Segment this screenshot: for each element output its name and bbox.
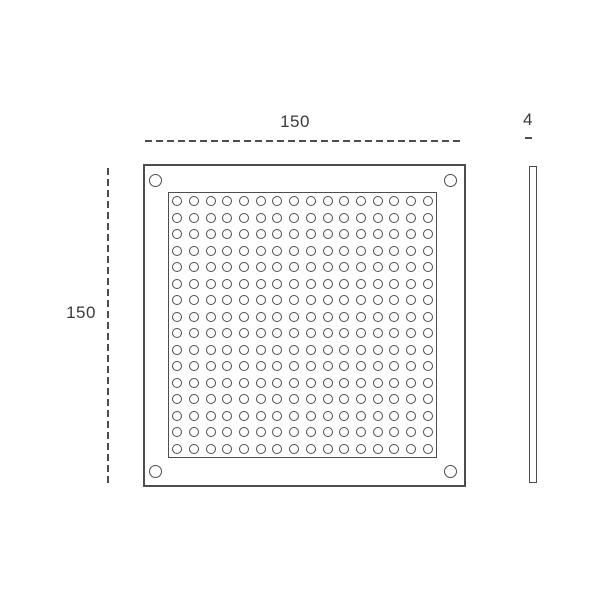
perforation-hole <box>272 328 282 338</box>
perforation-hole <box>256 361 266 371</box>
perforation-hole <box>222 246 232 256</box>
perforation-hole <box>256 378 266 388</box>
perforation-hole <box>189 213 199 223</box>
perforation-hole <box>406 279 416 289</box>
perforation-hole <box>289 394 299 404</box>
perforation-hole <box>289 213 299 223</box>
perforation-hole <box>373 427 383 437</box>
perforation-hole <box>356 394 366 404</box>
perforation-hole <box>239 361 249 371</box>
plate-side-view <box>529 166 537 483</box>
perforation-hole <box>423 213 433 223</box>
perforation-hole <box>256 394 266 404</box>
perforation-hole <box>373 312 383 322</box>
perforation-hole <box>206 312 216 322</box>
perforation-hole <box>339 361 349 371</box>
perforation-hole <box>206 427 216 437</box>
perforation-hole <box>389 229 399 239</box>
perforation-hole <box>239 246 249 256</box>
perforation-hole <box>323 378 333 388</box>
perforation-hole <box>189 262 199 272</box>
perforation-hole <box>389 328 399 338</box>
perforation-hole <box>339 262 349 272</box>
perforation-hole <box>239 427 249 437</box>
perforation-hole <box>289 262 299 272</box>
perforation-hole <box>423 394 433 404</box>
perforation-hole <box>306 213 316 223</box>
perforation-hole <box>172 427 182 437</box>
perforation-hole <box>239 279 249 289</box>
perforation-hole <box>206 361 216 371</box>
perforation-hole <box>172 394 182 404</box>
perforation-hole <box>323 361 333 371</box>
perforation-hole <box>239 312 249 322</box>
perforation-hole <box>406 262 416 272</box>
perforation-hole <box>373 213 383 223</box>
perforation-hole <box>272 312 282 322</box>
perforation-hole <box>206 411 216 421</box>
perforation-hole <box>389 295 399 305</box>
perforation-hole <box>306 444 316 454</box>
perforation-hole <box>356 411 366 421</box>
perforation-hole <box>272 229 282 239</box>
perforation-hole <box>272 279 282 289</box>
perforation-hole <box>373 378 383 388</box>
perforation-hole <box>289 378 299 388</box>
perforation-hole <box>356 279 366 289</box>
perforation-hole <box>289 411 299 421</box>
perforation-hole <box>389 213 399 223</box>
width-dimension-label: 150 <box>263 112 327 132</box>
perforation-hole <box>172 262 182 272</box>
perforation-hole <box>406 213 416 223</box>
perforation-hole <box>306 394 316 404</box>
perforation-hole <box>306 295 316 305</box>
perforation-hole <box>339 411 349 421</box>
perforation-hole <box>373 444 383 454</box>
perforation-hole <box>323 213 333 223</box>
perforation-hole <box>339 213 349 223</box>
perforation-hole <box>206 394 216 404</box>
perforation-hole <box>189 394 199 404</box>
perforation-hole <box>323 427 333 437</box>
perforation-hole <box>423 361 433 371</box>
perforation-hole <box>389 411 399 421</box>
height-dimension-label: 150 <box>59 303 103 323</box>
perforation-hole <box>289 444 299 454</box>
perforation-hole <box>306 361 316 371</box>
corner-hole-top-left <box>149 174 162 187</box>
perforation-hole <box>373 279 383 289</box>
perforation-hole <box>406 427 416 437</box>
perforation-hole <box>172 378 182 388</box>
perforation-hole <box>323 246 333 256</box>
perforation-hole <box>306 262 316 272</box>
perforation-hole <box>206 378 216 388</box>
perforation-hole <box>406 411 416 421</box>
perforation-hole <box>206 246 216 256</box>
perforation-hole <box>356 213 366 223</box>
perforation-hole <box>239 444 249 454</box>
perforation-hole <box>272 411 282 421</box>
perforation-hole <box>423 246 433 256</box>
perforation-hole <box>356 427 366 437</box>
perforation-hole <box>373 229 383 239</box>
perforation-hole <box>222 312 232 322</box>
perforation-hole <box>339 295 349 305</box>
perforation-hole <box>289 196 299 206</box>
perforation-hole <box>423 378 433 388</box>
perforation-hole <box>239 295 249 305</box>
perforation-hole <box>206 213 216 223</box>
perforation-hole <box>373 345 383 355</box>
perforation-hole <box>289 295 299 305</box>
perforation-hole <box>172 345 182 355</box>
perforation-hole <box>406 295 416 305</box>
perforation-hole <box>423 262 433 272</box>
perforation-hole <box>289 246 299 256</box>
perforation-hole <box>206 295 216 305</box>
perforation-hole <box>222 229 232 239</box>
perforation-hole <box>323 328 333 338</box>
perforation-hole <box>222 196 232 206</box>
perforation-hole <box>389 246 399 256</box>
perforation-hole <box>239 328 249 338</box>
perforation-hole <box>356 196 366 206</box>
perforation-hole <box>172 361 182 371</box>
perforation-hole <box>172 295 182 305</box>
perforation-hole <box>222 328 232 338</box>
perforation-hole <box>323 295 333 305</box>
perforation-hole <box>289 279 299 289</box>
perforation-hole <box>389 361 399 371</box>
perforation-hole <box>389 262 399 272</box>
perforation-hole <box>172 246 182 256</box>
perforation-hole <box>272 444 282 454</box>
perforation-grid <box>168 192 437 458</box>
perforation-hole <box>306 229 316 239</box>
perforation-hole <box>222 361 232 371</box>
perforation-hole <box>323 394 333 404</box>
perforation-hole <box>423 279 433 289</box>
perforation-hole <box>339 246 349 256</box>
technical-drawing: 150 150 4 <box>0 0 600 600</box>
perforation-hole <box>406 229 416 239</box>
perforation-hole <box>256 328 266 338</box>
perforation-hole <box>222 378 232 388</box>
perforation-hole <box>222 345 232 355</box>
perforation-hole <box>189 196 199 206</box>
perforation-hole <box>323 345 333 355</box>
perforation-hole <box>272 295 282 305</box>
perforation-hole <box>239 196 249 206</box>
perforation-hole <box>389 196 399 206</box>
perforation-hole <box>406 246 416 256</box>
perforation-hole <box>306 196 316 206</box>
perforation-hole <box>239 262 249 272</box>
perforation-hole <box>256 312 266 322</box>
perforation-hole <box>206 279 216 289</box>
perforation-hole <box>339 279 349 289</box>
perforation-hole <box>189 229 199 239</box>
perforation-hole <box>172 312 182 322</box>
perforation-hole <box>356 345 366 355</box>
thickness-dimension-line <box>525 137 532 139</box>
perforation-hole <box>306 411 316 421</box>
perforation-hole <box>239 213 249 223</box>
corner-hole-top-right <box>444 174 457 187</box>
perforation-hole <box>423 427 433 437</box>
perforation-hole <box>389 378 399 388</box>
perforation-hole <box>222 279 232 289</box>
perforation-hole <box>406 378 416 388</box>
perforation-hole <box>206 328 216 338</box>
perforation-hole <box>423 196 433 206</box>
perforation-hole <box>289 361 299 371</box>
perforation-hole <box>272 427 282 437</box>
perforation-hole <box>406 394 416 404</box>
perforation-hole <box>373 196 383 206</box>
perforation-hole <box>423 229 433 239</box>
perforation-hole <box>272 246 282 256</box>
perforation-hole <box>172 444 182 454</box>
perforation-hole <box>373 328 383 338</box>
perforation-hole <box>356 444 366 454</box>
perforation-hole <box>373 411 383 421</box>
perforation-hole <box>256 295 266 305</box>
perforation-hole <box>189 246 199 256</box>
perforation-hole <box>256 411 266 421</box>
perforation-hole <box>256 279 266 289</box>
perforation-hole <box>256 246 266 256</box>
perforation-hole <box>406 361 416 371</box>
perforation-hole <box>323 229 333 239</box>
perforation-hole <box>172 411 182 421</box>
perforation-hole <box>239 229 249 239</box>
perforation-hole <box>306 427 316 437</box>
perforation-hole <box>256 345 266 355</box>
perforation-hole <box>172 279 182 289</box>
perforation-hole <box>389 345 399 355</box>
perforation-hole <box>356 295 366 305</box>
perforation-hole <box>339 345 349 355</box>
perforation-hole <box>356 246 366 256</box>
perforation-hole <box>339 312 349 322</box>
perforation-hole <box>189 312 199 322</box>
perforation-hole <box>289 229 299 239</box>
perforation-hole <box>189 411 199 421</box>
perforation-hole <box>289 312 299 322</box>
perforation-hole <box>323 411 333 421</box>
perforation-hole <box>256 444 266 454</box>
perforation-hole <box>256 213 266 223</box>
height-dimension-line <box>107 168 109 483</box>
perforation-hole <box>423 312 433 322</box>
perforation-hole <box>206 229 216 239</box>
perforation-hole <box>272 378 282 388</box>
plate-front-view <box>143 164 466 487</box>
perforation-hole <box>256 262 266 272</box>
perforation-hole <box>389 312 399 322</box>
perforation-hole <box>172 229 182 239</box>
perforation-hole <box>306 328 316 338</box>
perforation-hole <box>389 427 399 437</box>
perforation-hole <box>406 312 416 322</box>
perforation-hole <box>339 394 349 404</box>
perforation-hole <box>423 345 433 355</box>
perforation-hole <box>239 394 249 404</box>
perforation-hole <box>339 328 349 338</box>
perforation-hole <box>389 444 399 454</box>
perforation-hole <box>189 295 199 305</box>
perforation-hole <box>373 394 383 404</box>
perforation-hole <box>339 378 349 388</box>
perforation-hole <box>373 262 383 272</box>
perforation-hole <box>189 444 199 454</box>
perforation-hole <box>423 328 433 338</box>
perforation-hole <box>256 229 266 239</box>
perforation-hole <box>356 229 366 239</box>
perforation-hole <box>189 328 199 338</box>
perforation-hole <box>306 378 316 388</box>
perforation-hole <box>389 394 399 404</box>
perforation-hole <box>423 444 433 454</box>
perforation-hole <box>339 229 349 239</box>
perforation-hole <box>222 411 232 421</box>
perforation-hole <box>306 312 316 322</box>
perforation-hole <box>272 262 282 272</box>
perforation-hole <box>189 279 199 289</box>
perforation-hole <box>323 262 333 272</box>
perforation-hole <box>306 246 316 256</box>
perforation-hole <box>389 279 399 289</box>
perforation-hole <box>406 444 416 454</box>
perforation-hole <box>306 279 316 289</box>
perforation-hole <box>189 361 199 371</box>
perforation-hole <box>423 295 433 305</box>
perforation-hole <box>306 345 316 355</box>
perforation-hole <box>289 328 299 338</box>
perforation-hole <box>272 213 282 223</box>
width-dimension-line <box>145 140 460 142</box>
perforation-hole <box>222 213 232 223</box>
corner-hole-bottom-right <box>444 465 457 478</box>
perforation-hole <box>289 345 299 355</box>
perforation-hole <box>222 295 232 305</box>
perforation-hole <box>222 444 232 454</box>
perforation-hole <box>339 196 349 206</box>
perforation-hole <box>206 345 216 355</box>
perforation-hole <box>289 427 299 437</box>
perforation-hole <box>206 262 216 272</box>
perforation-hole <box>172 213 182 223</box>
perforation-hole <box>189 427 199 437</box>
perforation-hole <box>406 196 416 206</box>
perforation-hole <box>339 444 349 454</box>
perforation-hole <box>356 328 366 338</box>
perforation-hole <box>406 345 416 355</box>
perforation-hole <box>272 345 282 355</box>
perforation-hole <box>256 196 266 206</box>
corner-hole-bottom-left <box>149 465 162 478</box>
perforation-hole <box>239 378 249 388</box>
perforation-hole <box>356 262 366 272</box>
perforation-hole <box>323 196 333 206</box>
perforation-hole <box>172 196 182 206</box>
perforation-hole <box>206 444 216 454</box>
perforation-hole <box>356 312 366 322</box>
perforation-hole <box>172 328 182 338</box>
perforation-hole <box>222 262 232 272</box>
perforation-hole <box>406 328 416 338</box>
perforation-hole <box>239 411 249 421</box>
perforation-hole <box>423 411 433 421</box>
thickness-dimension-label: 4 <box>514 110 542 130</box>
perforation-hole <box>339 427 349 437</box>
perforation-hole <box>373 246 383 256</box>
perforation-hole <box>323 279 333 289</box>
perforation-hole <box>256 427 266 437</box>
perforation-hole <box>373 295 383 305</box>
perforation-hole <box>239 345 249 355</box>
perforation-hole <box>189 345 199 355</box>
perforation-hole <box>323 312 333 322</box>
perforation-hole <box>373 361 383 371</box>
perforation-hole <box>356 361 366 371</box>
perforation-hole <box>272 196 282 206</box>
perforation-hole <box>272 361 282 371</box>
perforation-hole <box>206 196 216 206</box>
perforation-hole <box>222 394 232 404</box>
perforation-hole <box>323 444 333 454</box>
perforation-hole <box>222 427 232 437</box>
perforation-hole <box>356 378 366 388</box>
perforation-hole <box>189 378 199 388</box>
perforation-hole <box>272 394 282 404</box>
